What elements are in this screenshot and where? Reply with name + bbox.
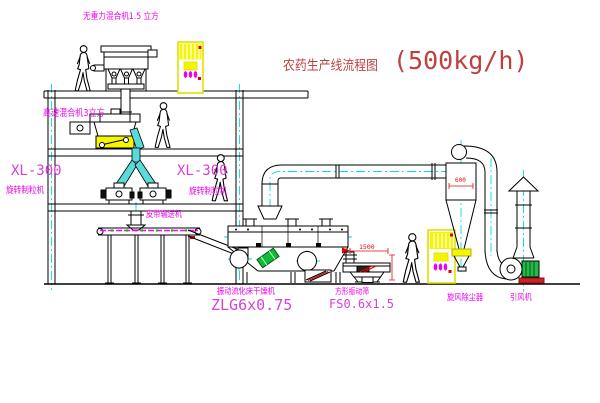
control-cabinet-2 [428, 230, 455, 283]
dimension-sieve-width: 1500 [359, 244, 375, 251]
diagram-title: 农药生产线流程图 (500kg/h) [283, 46, 528, 75]
label-xl300-left: XL-300 [11, 164, 62, 178]
worker-1 [75, 46, 90, 91]
dimension-cyclone-diameter: 600 [455, 178, 466, 184]
label-gravity-free-mixer: 无重力混合机1.5 立方 [83, 13, 159, 22]
fluid-bed-dryer [228, 206, 350, 283]
label-sieve-model: FS0.6x1.5 [329, 298, 394, 310]
label-high-speed-mixer: 高速混合机3立方 [43, 109, 105, 119]
label-dryer-model: ZLG6x0.75 [211, 298, 292, 313]
label-sieve: 方形振动筛 [335, 288, 369, 296]
granulator-left [101, 183, 134, 204]
control-cabinet-1 [178, 42, 203, 93]
label-fan: 引风机 [510, 294, 532, 303]
conveyor-feed-pipe [127, 211, 145, 230]
worker-4 [403, 234, 419, 283]
cad-flow-diagram: 农药生产线流程图 (500kg/h) 无重力混合机1.5 立方 高速混合机3立方… [0, 0, 600, 403]
cyclone-separator [446, 145, 508, 280]
label-granulator-right: 旋转制粒机 [189, 188, 227, 197]
square-sieve [343, 252, 390, 283]
exhaust-duct [262, 163, 446, 206]
title-capacity: (500kg/h) [393, 46, 528, 75]
gravity-free-mixer [91, 46, 158, 116]
title-text: 农药生产线流程图 [283, 54, 378, 74]
label-belt-conveyor: 皮带输送机 [146, 211, 182, 220]
label-xl300-mid: XL-300 [177, 164, 228, 178]
induced-draft-fan [500, 258, 544, 283]
granulator-right [138, 183, 171, 204]
label-cyclone: 旋风除尘器 [447, 294, 483, 303]
belt-conveyor [97, 228, 201, 283]
worker-2 [155, 103, 170, 148]
label-granulator-left: 旋转制粒机 [6, 187, 44, 196]
